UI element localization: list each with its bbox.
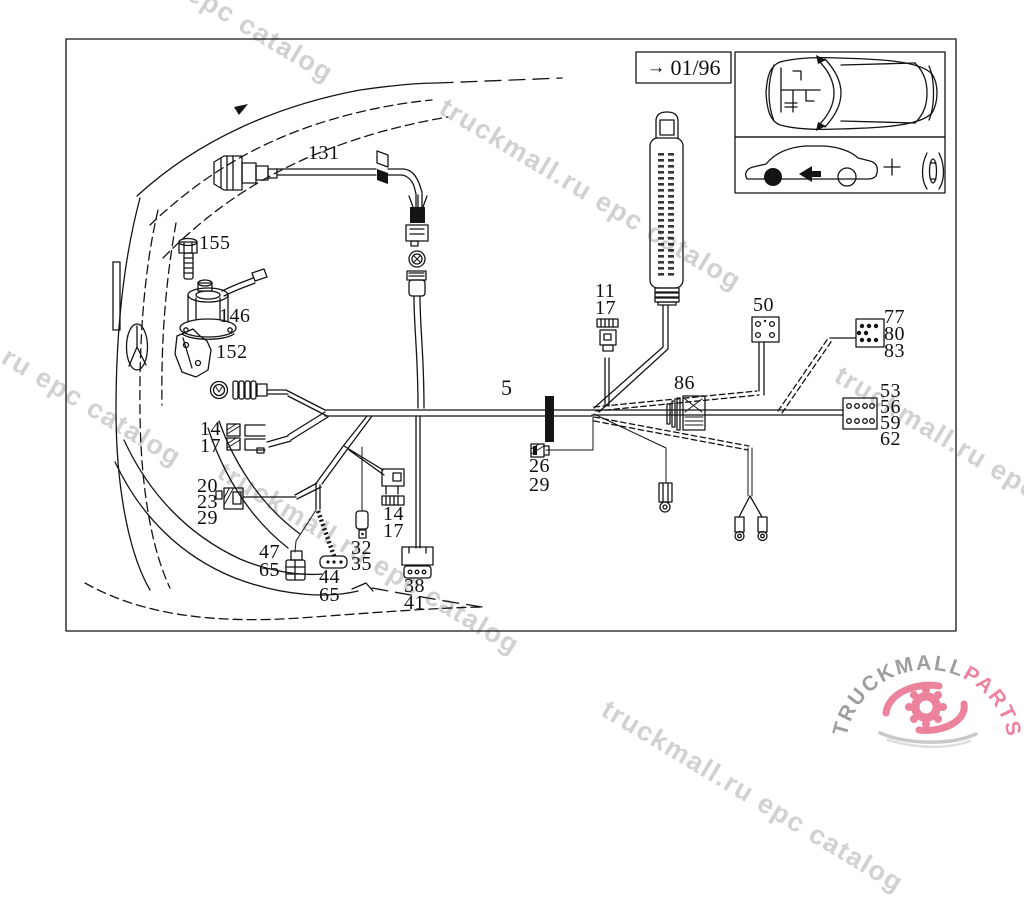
connector-38-41: [402, 547, 433, 578]
logo-gear-swirl: [880, 685, 976, 747]
part-131-cable: [214, 151, 428, 408]
callout-131[interactable]: 131: [308, 145, 340, 162]
callout-14-17-mid[interactable]: 1417: [383, 506, 404, 540]
part-155-bolt: [179, 239, 197, 280]
connector-86: [667, 396, 705, 430]
callout-152[interactable]: 152: [216, 344, 248, 361]
callout-14-17-left[interactable]: 1417: [200, 421, 221, 455]
harness-tape-band: [545, 396, 554, 442]
callout-86[interactable]: 86: [674, 375, 695, 392]
callout-47-65[interactable]: 4765: [259, 544, 280, 580]
callout-155[interactable]: 155: [199, 235, 231, 252]
bulb-socket: [659, 483, 672, 512]
car-top-view: [766, 55, 937, 131]
logo-accent-text: PARTS: [960, 662, 1024, 740]
callout-5[interactable]: 5: [501, 379, 513, 396]
cable-clip: [377, 151, 388, 184]
callout-44-65[interactable]: 4465: [319, 569, 340, 605]
epc-diagram-page: { "revision_box": { "arrow": "→", "revis…: [0, 0, 1024, 750]
callout-77-80-83[interactable]: 778083: [884, 309, 905, 360]
connector-14-17-left: [227, 424, 265, 453]
connector-53-56-59-62: [843, 398, 877, 429]
plus-icon: [884, 159, 900, 175]
callout-11-17[interactable]: 1117: [595, 283, 616, 317]
callout-53-56-59-62[interactable]: 53565962: [880, 383, 901, 447]
rear-wheel-marker: [838, 168, 856, 186]
brand-emblem: [127, 324, 148, 370]
suppressor-connector: [211, 381, 268, 399]
callout-146[interactable]: 146: [219, 308, 251, 325]
revision-box: → 01/96: [636, 52, 731, 83]
callout-38-41[interactable]: 3841: [404, 578, 425, 612]
harness-trunk-right: [592, 410, 843, 415]
callout-32-35[interactable]: 3235: [351, 540, 372, 572]
sleeved-wire: [318, 511, 334, 556]
car-location-inset: [735, 52, 945, 193]
cable-end-stack: [406, 195, 428, 296]
wiring-harness: [211, 305, 885, 580]
connector-77-80-83: [856, 319, 884, 347]
connector-50: [752, 317, 779, 342]
connector-47-65: [286, 551, 305, 580]
connector-20-23-29: [216, 488, 243, 509]
seal-icon: [923, 153, 944, 189]
antenna-amplifier-unit: [650, 112, 683, 305]
callout-26-29[interactable]: 2629: [529, 458, 550, 496]
front-wheel-marker: [764, 168, 782, 186]
arrow-right-icon: →: [646, 57, 665, 79]
terminal-sockets: [735, 517, 767, 541]
truckmall-logo[interactable]: TRUCKMALLPARTS: [826, 645, 1024, 750]
connector-14-17-mid: [382, 469, 404, 505]
connector-11-17: [597, 319, 618, 351]
harness-location-glyph: [781, 68, 820, 112]
callout-50[interactable]: 50: [753, 297, 774, 314]
revision-label: 01/96: [670, 55, 720, 81]
part-32-35: [356, 511, 368, 538]
car-side-view: [746, 146, 944, 189]
callout-20-23-29[interactable]: 202329: [197, 478, 218, 526]
